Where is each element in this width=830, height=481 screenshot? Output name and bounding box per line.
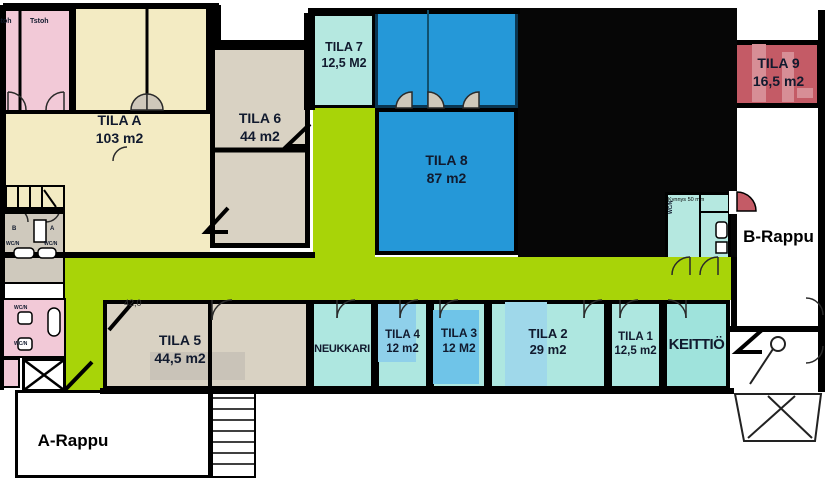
label-tila-6: TILA 6 44 m2 [213,110,307,145]
label-wc-3: WC/N [14,305,27,311]
wall-top-center [308,8,520,14]
wall-outer-left [0,5,4,390]
wall-tila6-top [210,40,315,46]
label-b-rappu: B-Rappu [737,226,820,247]
label-a-rappu: A-Rappu [18,430,128,451]
room-wc-block-west [3,212,65,284]
label-tila-4: TILA 4 12 m2 [375,328,430,357]
label-tila-7: TILA 7 12,5 M2 [313,40,375,71]
room-tila-6 [210,45,310,248]
label-wc-2: WC/N [44,241,57,247]
label-tila-a: TILA A 103 m2 [72,112,167,147]
stairwell-b [731,330,822,390]
wall-brappu-left [731,257,737,330]
label-wc-5: WC/N [668,201,674,214]
room-tila-8-north [375,10,518,108]
room-tila-a-north [72,5,210,110]
corridor-north [313,108,375,257]
label-tstoh-1: Tstoh [0,18,12,27]
corridor-west [65,300,103,390]
floor-plan: Tstoh Tstoh TILA A 103 m2 TILA 6 44 m2 T… [0,0,830,481]
label-dimension-42: 42,0 [124,298,142,309]
wall-corridor-top [3,252,315,258]
room-wc-block-pink [0,298,66,358]
label-unit-b: B [12,226,16,234]
label-keittio: KEITTIÖ [661,336,732,355]
label-wc-1: WC/N [6,241,19,247]
label-tila-3: TILA 3 12 M2 [430,326,488,356]
wall-brappu-bottom [729,326,823,332]
wall-bottom-row [100,388,734,394]
elevator-shaft [22,358,66,392]
label-tila-5: TILA 5 44,5 m2 [120,332,240,367]
label-tila-1: TILA 1 12,5 m2 [608,330,663,359]
room-wc-lobby [3,284,65,298]
brappu-red-door [737,192,756,211]
stairwell-a [211,390,256,478]
label-wc-4: WC/N [14,341,27,347]
label-tila-2: TILA 2 29 m2 [488,326,608,359]
label-tstoh-2: Tstoh [30,18,49,27]
wall-outer-right-low [818,330,825,392]
corridor-main [65,257,737,300]
label-tila-8: TILA 8 87 m2 [375,152,518,187]
label-unit-a: A [50,226,54,234]
label-tila-9: TILA 9 16,5 m2 [737,55,820,90]
wall-top-west [3,3,219,9]
label-neukkari: NEUKKARI [306,343,378,357]
